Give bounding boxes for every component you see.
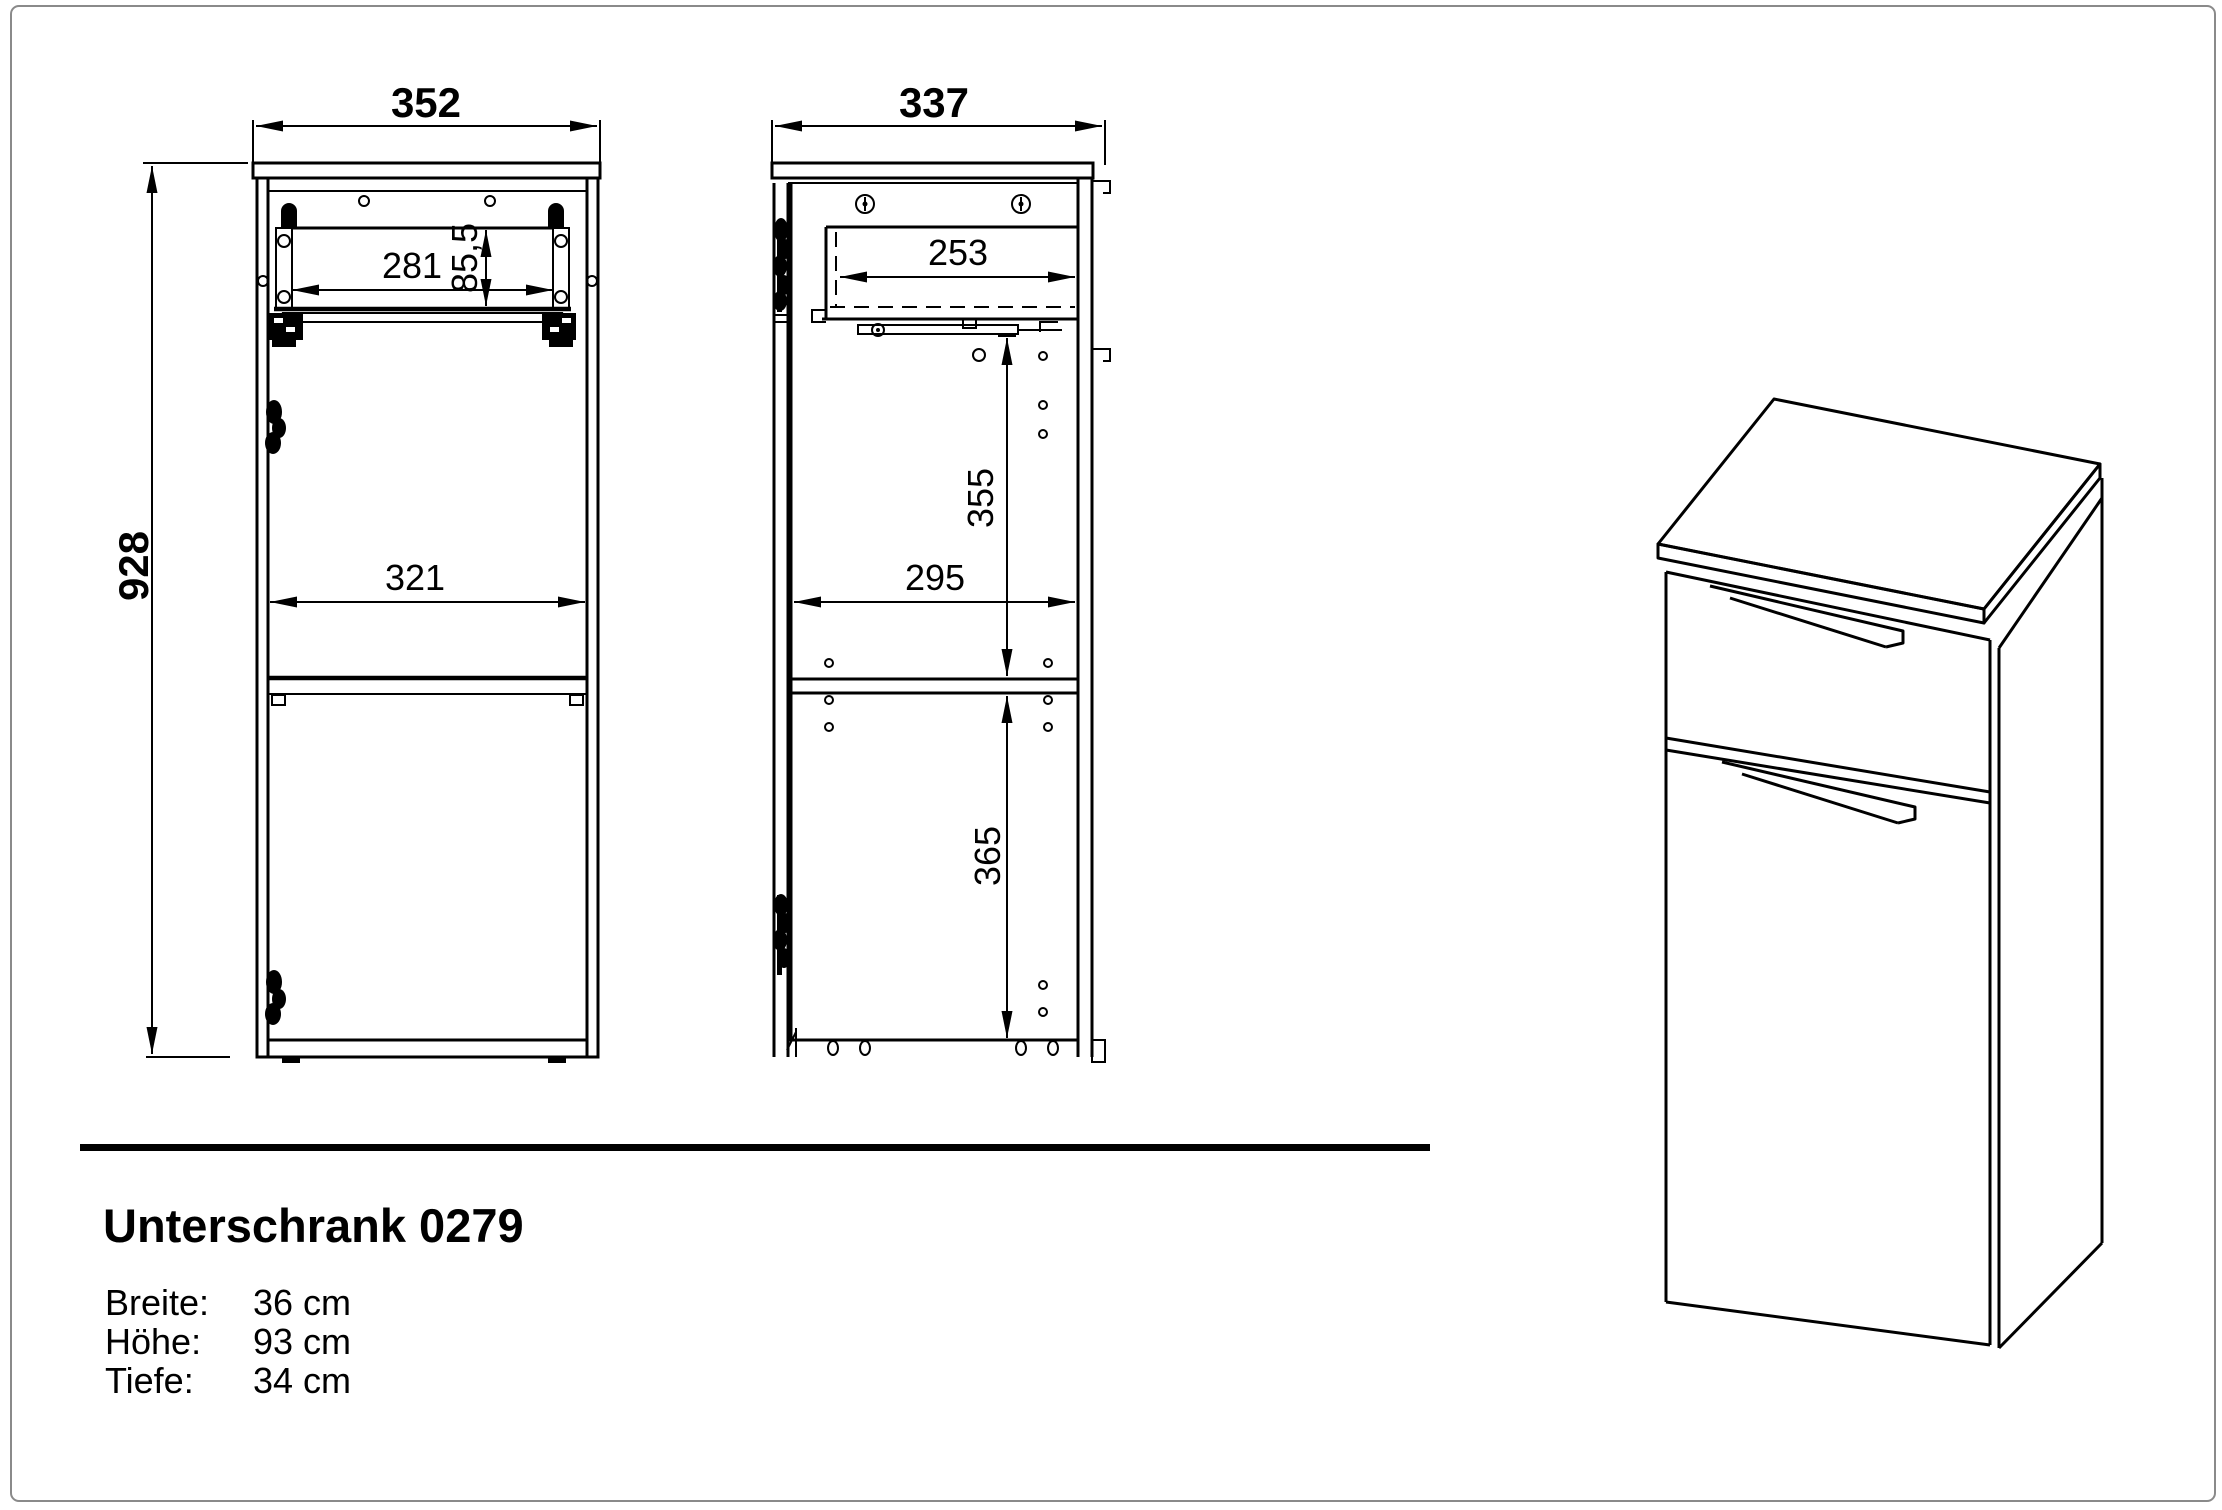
slide-roller-pin <box>876 328 880 332</box>
wall-hanger-hook-mid <box>1093 349 1110 361</box>
spec-table: Breite: 36 cm Höhe: 93 cm Tiefe: 34 cm <box>105 1283 413 1400</box>
spec-value: 36 cm <box>253 1283 413 1322</box>
wall-hanger-hook-top <box>1093 181 1110 193</box>
rail-rivet <box>555 235 567 247</box>
dim-label-drawer-height: 85,5 <box>444 223 485 293</box>
dim-side-interior-depth: 295 <box>794 557 1075 602</box>
spec-value: 93 cm <box>253 1322 413 1361</box>
spec-row-hoehe: Höhe: 93 cm <box>105 1322 413 1361</box>
rail-rivet <box>555 291 567 303</box>
iso-gap-line-2 <box>1666 750 1990 803</box>
drawer-slide-bracket-right <box>542 313 576 347</box>
drawer-rail-hook <box>281 203 297 228</box>
top-panel-screw <box>1012 195 1030 213</box>
spec-label: Höhe: <box>105 1322 253 1361</box>
side-view <box>772 163 1110 1062</box>
side-top-slab <box>772 163 1093 178</box>
door-fitting-right <box>570 695 583 705</box>
dim-side-drawer-depth: 253 <box>840 232 1075 277</box>
spec-row-tiefe: Tiefe: 34 cm <box>105 1361 413 1400</box>
iso-side-bottom-edge <box>1999 1243 2102 1348</box>
spec-row-breite: Breite: 36 cm <box>105 1283 413 1322</box>
back-panel-lip <box>1092 1040 1105 1062</box>
drawer-bottom-panel <box>282 313 563 322</box>
iso-door-handle <box>1722 762 1915 823</box>
back-panel-screw-hole <box>359 196 369 206</box>
iso-front-bottom-edge <box>1666 1302 1990 1345</box>
dim-side-lower-height: 365 <box>967 696 1008 1038</box>
dim-front-drawer-width: 281 <box>292 245 553 290</box>
side-shelf <box>791 679 1078 693</box>
dim-front-height: 928 <box>110 163 248 1057</box>
iso-view <box>1658 399 2102 1348</box>
dim-label-side-depth: 337 <box>899 79 969 126</box>
dim-side-depth: 337 <box>772 79 1105 165</box>
dim-front-drawer-height: 85,5 <box>444 223 486 306</box>
rail-rivet <box>278 235 290 247</box>
dim-label-front-width: 352 <box>391 79 461 126</box>
dim-label-interior-depth: 295 <box>905 557 965 598</box>
dim-label-upper-height: 355 <box>960 468 1001 528</box>
dim-side-upper-height: 355 <box>960 336 1016 676</box>
system-holes <box>825 349 1052 1016</box>
drawer-rail-hook <box>548 203 564 228</box>
door-fitting-left <box>272 695 285 705</box>
spec-value: 34 cm <box>253 1361 413 1400</box>
dim-front-interior-width: 321 <box>270 557 585 602</box>
dim-label-drawer-width: 281 <box>382 245 442 286</box>
technical-drawing-page: 352 928 281 85,5 321 <box>0 0 2222 1510</box>
front-view <box>253 163 600 1063</box>
dim-label-drawer-depth: 253 <box>928 232 988 273</box>
spec-label: Breite: <box>105 1283 253 1322</box>
iso-slab-right-face <box>1984 464 2100 623</box>
product-title: Unterschrank 0279 <box>103 1198 524 1253</box>
rail-rivet <box>278 291 290 303</box>
top-panel-screw <box>856 195 874 213</box>
front-top-slab <box>253 163 600 178</box>
dim-label-interior-width: 321 <box>385 557 445 598</box>
dim-label-lower-height: 365 <box>967 826 1008 886</box>
dim-front-width: 352 <box>253 79 600 165</box>
iso-top-face <box>1658 399 2100 609</box>
spec-label: Tiefe: <box>105 1361 253 1400</box>
drawer-slide-bracket-left <box>269 313 303 347</box>
section-divider <box>80 1144 1430 1151</box>
dim-label-front-height: 928 <box>110 531 157 601</box>
foot-pad <box>282 1057 300 1063</box>
back-panel-screw-hole <box>485 196 495 206</box>
iso-gap-line-1 <box>1666 738 1990 792</box>
foot-pad <box>548 1057 566 1063</box>
bottom-screw-holes <box>828 1041 1058 1055</box>
